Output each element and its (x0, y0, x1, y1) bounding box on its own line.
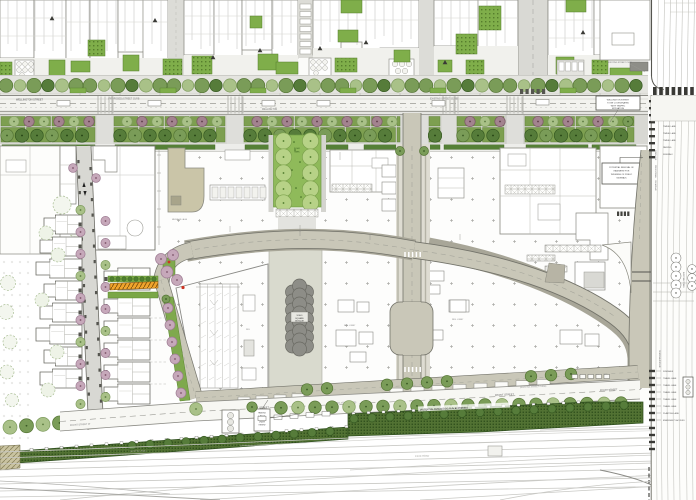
svg-text:SQUARE: SQUARE (295, 317, 304, 320)
svg-text:BOSQUE: BOSQUE (295, 321, 304, 323)
svg-text:RES. LOBBY: RES. LOBBY (344, 325, 356, 327)
svg-text:TRAVEL LANE: TRAVEL LANE (663, 384, 677, 387)
svg-text:EXISTING STREET CURB: EXISTING STREET CURB (608, 62, 633, 64)
svg-text:TRAVEL LANE: TRAVEL LANE (663, 391, 677, 394)
svg-text:SOHO: SOHO (297, 315, 303, 317)
svg-text:SPADINA AVENUE: SPADINA AVENUE (658, 350, 661, 368)
svg-text:WITH TRAFFIC: WITH TRAFFIC (611, 105, 626, 108)
svg-text:PARK: PARK (294, 151, 300, 154)
svg-text:TO BE COORDINATED: TO BE COORDINATED (607, 102, 629, 105)
svg-text:PARKING: PARKING (258, 412, 266, 415)
svg-text:SIDEWALK: SIDEWALK (616, 177, 627, 180)
svg-text:CXXC ROAD: CXXC ROAD (415, 454, 430, 458)
svg-text:CLEARWAY: CLEARWAY (654, 180, 657, 192)
svg-text:MITIGATION: MITIGATION (612, 107, 624, 110)
svg-text:EXISTING TREES: EXISTING TREES (682, 272, 684, 288)
svg-text:EMERGENCY ACCESS: EMERGENCY ACCESS (663, 419, 685, 422)
svg-text:SIDEWALK: SIDEWALK (663, 370, 674, 373)
svg-text:REVIEW: REVIEW (259, 425, 266, 427)
svg-text:TRAVEL LANE: TRAVEL LANE (663, 377, 677, 380)
svg-text:RES. LOBBY: RES. LOBBY (452, 319, 464, 321)
svg-text:TRAVEL LANE: TRAVEL LANE (663, 398, 677, 401)
svg-text:WELLINGTON STREET: WELLINGTON STREET (16, 99, 44, 102)
svg-text:TRAVEL LANE: TRAVEL LANE (663, 139, 676, 142)
svg-text:PARKING: PARKING (663, 146, 672, 149)
svg-text:SIDEWALK: SIDEWALK (663, 153, 673, 156)
svg-text:TRAVEL LANE: TRAVEL LANE (663, 405, 677, 408)
svg-text:SOHO: SOHO (294, 148, 300, 150)
svg-text:MEDIA VILLAGE: MEDIA VILLAGE (172, 218, 188, 221)
svg-text:WELLINGTON: WELLINGTON (262, 109, 277, 111)
svg-text:UNDER: UNDER (259, 422, 266, 424)
svg-text:EASEMENT FOR: EASEMENT FOR (614, 170, 630, 173)
svg-text:PLANTING LANE: PLANTING LANE (663, 412, 679, 415)
svg-text:SIDEWALK: SIDEWALK (654, 150, 657, 161)
svg-text:WIDENING OF PUBLIC: WIDENING OF PUBLIC (611, 174, 633, 176)
svg-text:(EXISTING RAIL): (EXISTING RAIL) (130, 449, 147, 453)
svg-text:TRAVEL LANE: TRAVEL LANE (663, 125, 676, 128)
svg-text:PEDESTRIAN: PEDESTRIAN (654, 165, 657, 178)
svg-text:POTENTIAL REMOVAL OF: POTENTIAL REMOVAL OF (609, 166, 634, 169)
svg-text:WELLINGTON STREET: WELLINGTON STREET (607, 100, 630, 102)
svg-text:TRAVEL LANE: TRAVEL LANE (663, 132, 676, 135)
